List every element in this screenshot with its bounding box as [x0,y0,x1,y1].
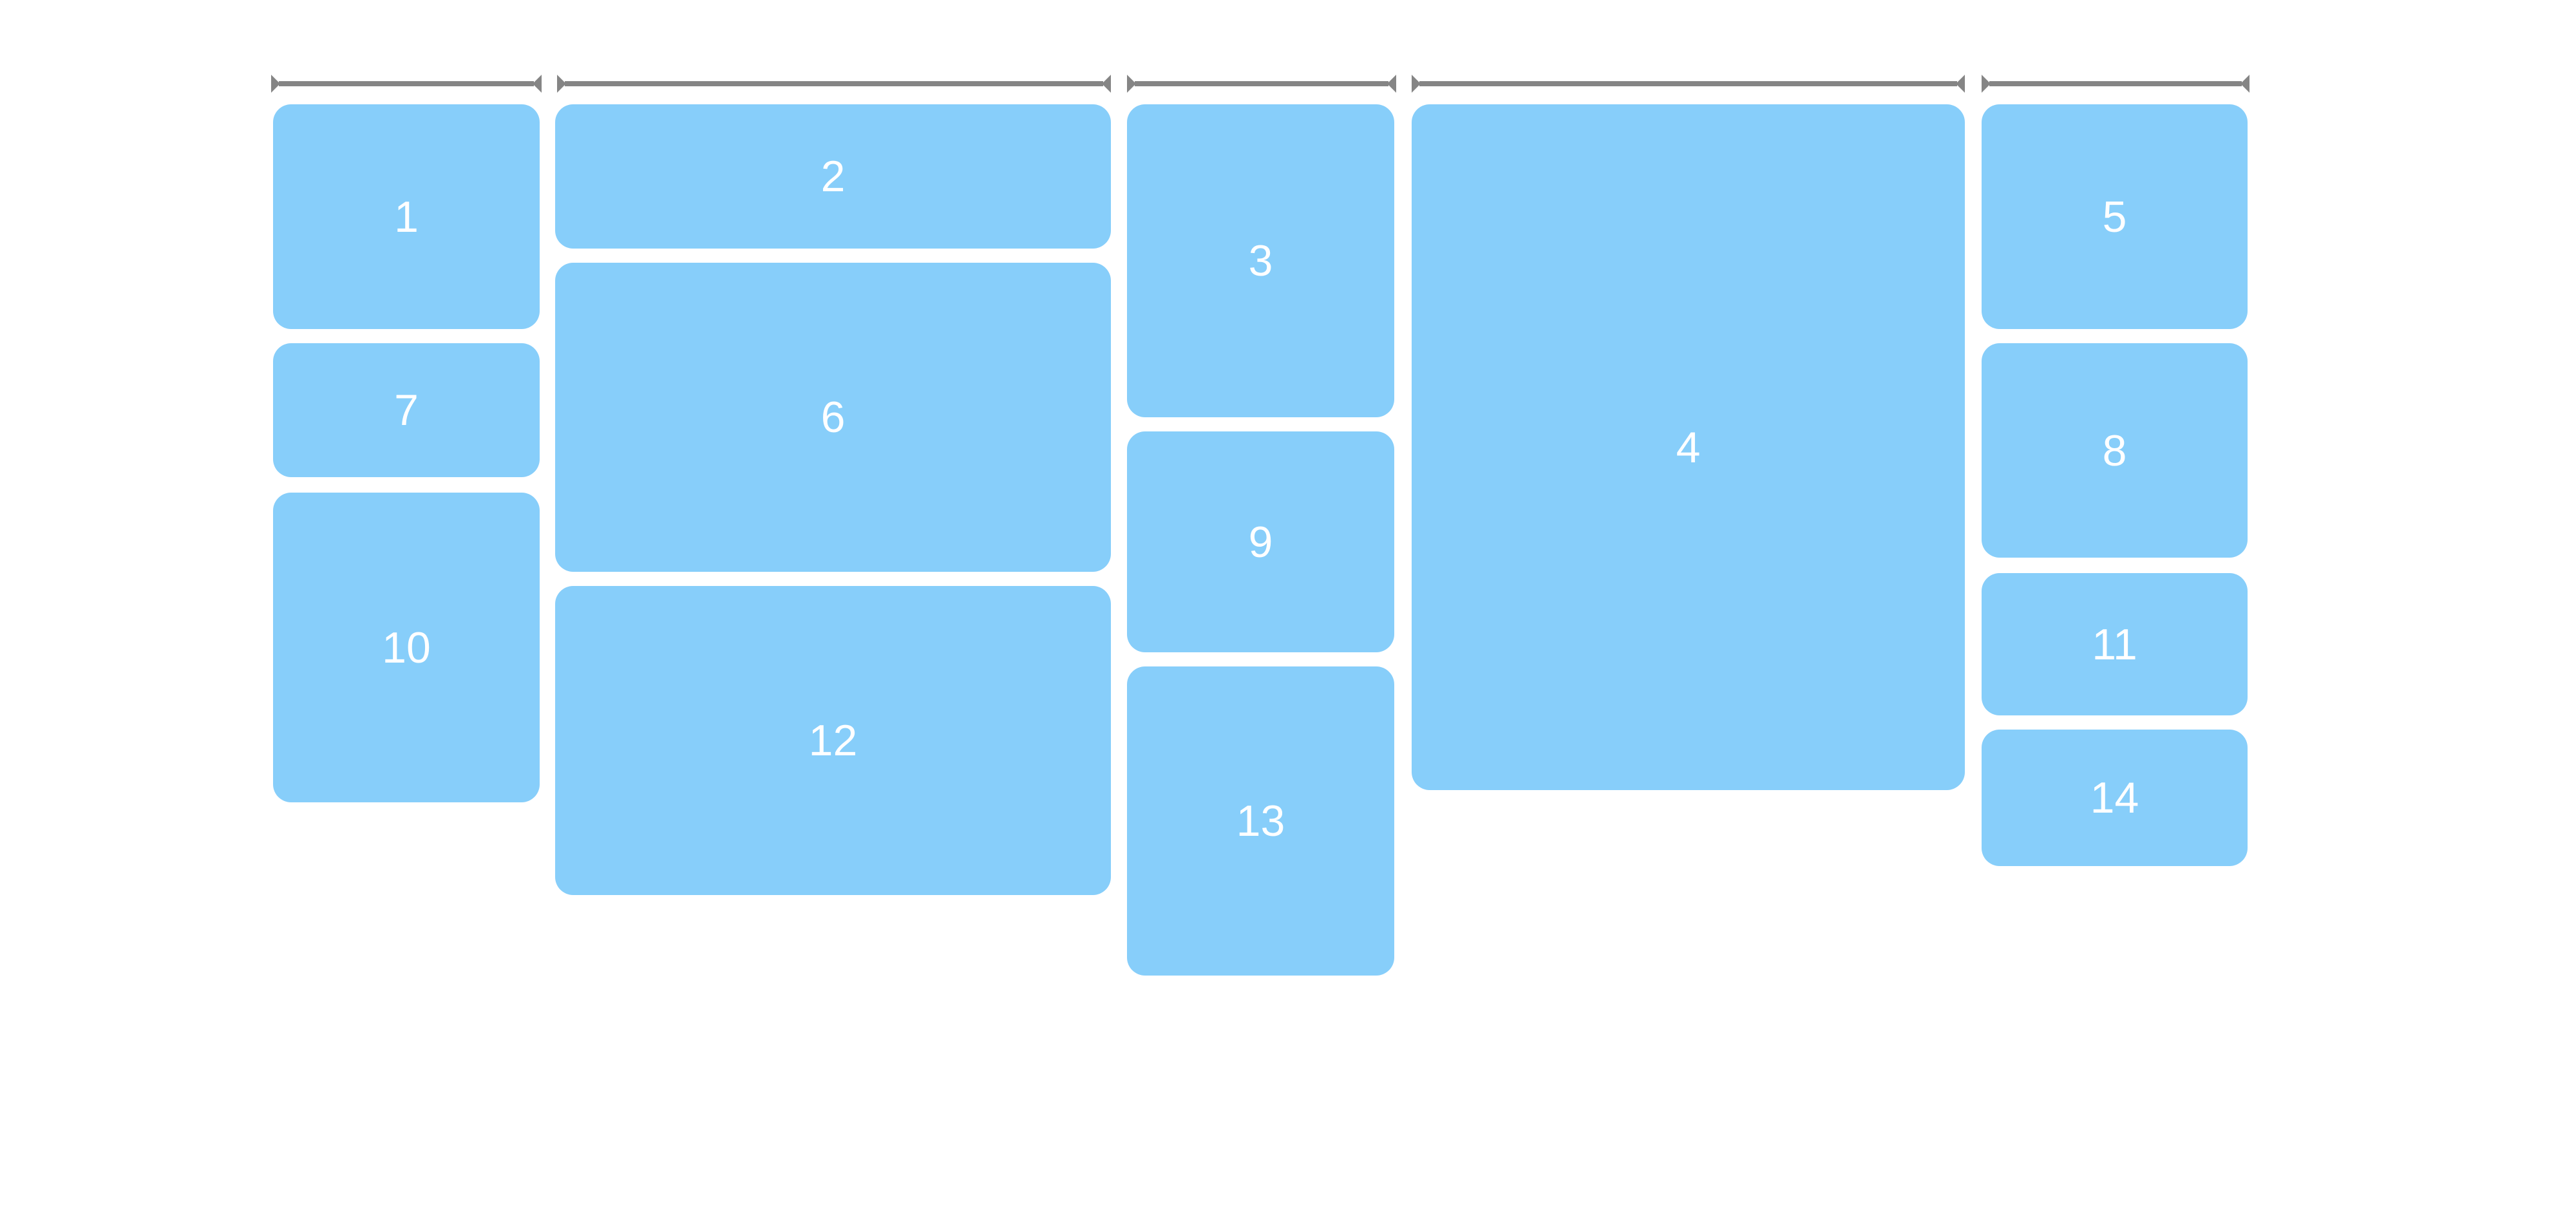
column-1-width-ruler [271,75,542,93]
grid-item-8: 8 [1982,343,2248,558]
grid-item-4: 4 [1412,104,1965,790]
grid-item-10: 10 [273,493,540,802]
grid-item-label: 10 [382,626,431,670]
grid-item-label: 9 [1249,520,1273,564]
grid-item-11: 11 [1982,573,2248,715]
column-2-width-ruler [557,75,1111,93]
ruler-line [565,81,1103,86]
grid-item-14: 14 [1982,730,2248,866]
grid-item-label: 11 [2092,623,2137,666]
grid-item-3: 3 [1127,104,1394,417]
grid-item-13: 13 [1127,666,1394,976]
grid-item-1: 1 [273,104,540,329]
ruler-line [279,81,534,86]
grid-item-label: 5 [2103,195,2127,239]
grid-item-5: 5 [1982,104,2248,329]
grid-item-label: 2 [821,155,846,198]
ruler-line [1135,81,1388,86]
grid-item-label: 13 [1236,799,1285,843]
grid-item-label: 6 [821,395,846,439]
grid-item-2: 2 [555,104,1111,249]
ruler-line [1419,81,1957,86]
grid-item-label: 7 [394,388,419,432]
column-3-width-ruler [1127,75,1396,93]
grid-item-6: 6 [555,263,1111,572]
grid-item-label: 4 [1676,426,1701,469]
grid-item-label: 3 [1249,239,1273,283]
grid-item-7: 7 [273,343,540,477]
column-5-width-ruler [1982,75,2249,93]
grid-item-label: 1 [394,195,419,239]
grid-item-label: 14 [2090,776,2139,820]
masonry-layout-canvas: 1 2 3 4 5 6 7 8 9 10 11 12 13 14 [0,0,2576,1208]
column-4-width-ruler [1412,75,1965,93]
grid-item-9: 9 [1127,431,1394,652]
grid-item-label: 12 [809,719,858,762]
grid-item-label: 8 [2103,429,2127,473]
ruler-line [1989,81,2242,86]
grid-item-12: 12 [555,586,1111,895]
